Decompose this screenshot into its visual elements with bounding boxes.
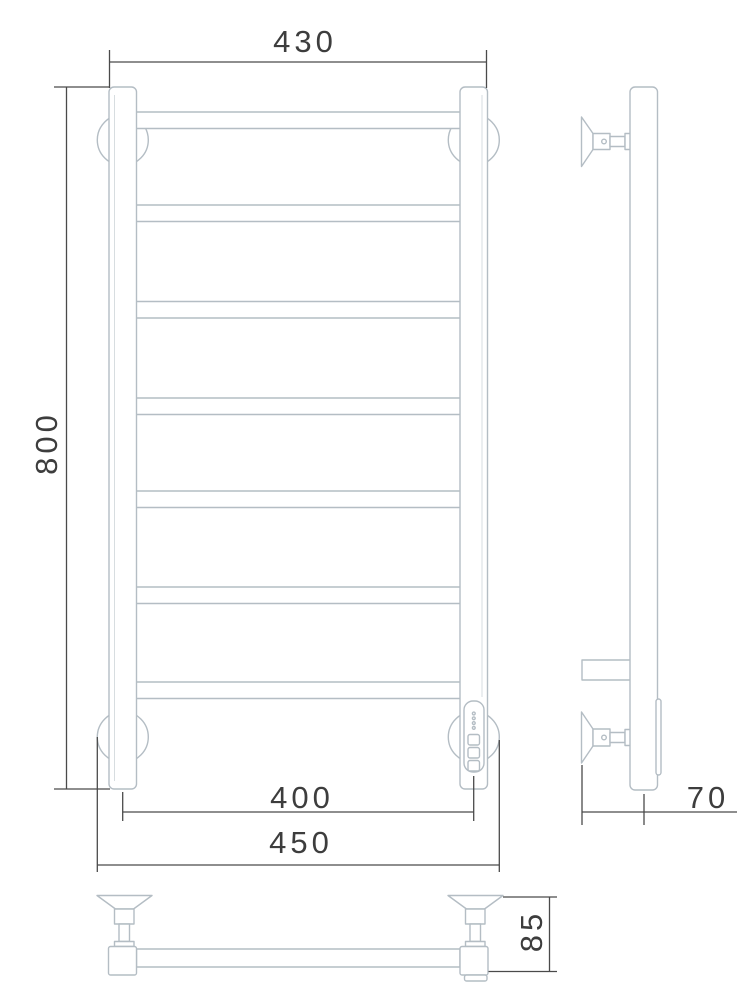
rung [136,682,461,699]
top-panel-section [465,975,488,981]
top-post-section-left [109,947,137,976]
rung [136,205,461,222]
top-view [97,896,503,982]
dim-label-70: 70 [687,780,729,815]
rung [136,302,461,319]
bracket-rod [119,924,130,942]
side-bracket-bottom [582,712,631,763]
rung [136,112,461,129]
panel-button [468,748,480,759]
dim-label-800: 800 [29,411,64,475]
front-view [97,87,499,789]
control-panel [464,701,484,772]
bracket-cone [97,896,152,910]
dim-label-400: 400 [270,780,334,815]
rung [136,587,461,604]
bracket-cone [582,712,594,763]
side-post [630,87,658,790]
bracket-block [466,909,486,924]
dim-bracket-depth-85: 85 [489,897,558,972]
side-panel-strip [656,699,661,775]
bracket-rod [470,924,481,942]
dim-top-width-430: 430 [110,24,487,88]
top-bracket-right [448,896,503,947]
bracket-block [115,909,135,924]
rungs [136,112,461,699]
dim-bracket-span-400: 400 [123,776,474,821]
dim-label-85: 85 [514,910,549,952]
dim-height-800: 800 [29,87,110,789]
panel-button [468,735,480,746]
technical-drawing: 430 800 400 450 70 [0,0,748,999]
bracket-rod [610,137,625,147]
left-post [109,87,137,789]
rung [136,491,461,508]
bracket-plate [115,942,135,947]
top-bracket-left [97,896,152,947]
dim-label-430: 430 [273,24,337,59]
panel-button [468,761,480,772]
right-post [460,87,488,789]
dim-label-450: 450 [269,825,333,860]
bracket-plate [466,942,486,947]
rung [136,398,461,415]
side-rung-stub [582,660,631,680]
side-bracket-top [582,117,631,167]
top-tube [137,949,461,967]
bracket-cone [448,896,503,910]
bracket-rod [610,733,625,743]
side-view [582,87,662,790]
top-post-section-right [460,947,488,976]
bracket-cone [582,117,594,167]
technical-drawing-page: 430 800 400 450 70 [0,0,748,999]
